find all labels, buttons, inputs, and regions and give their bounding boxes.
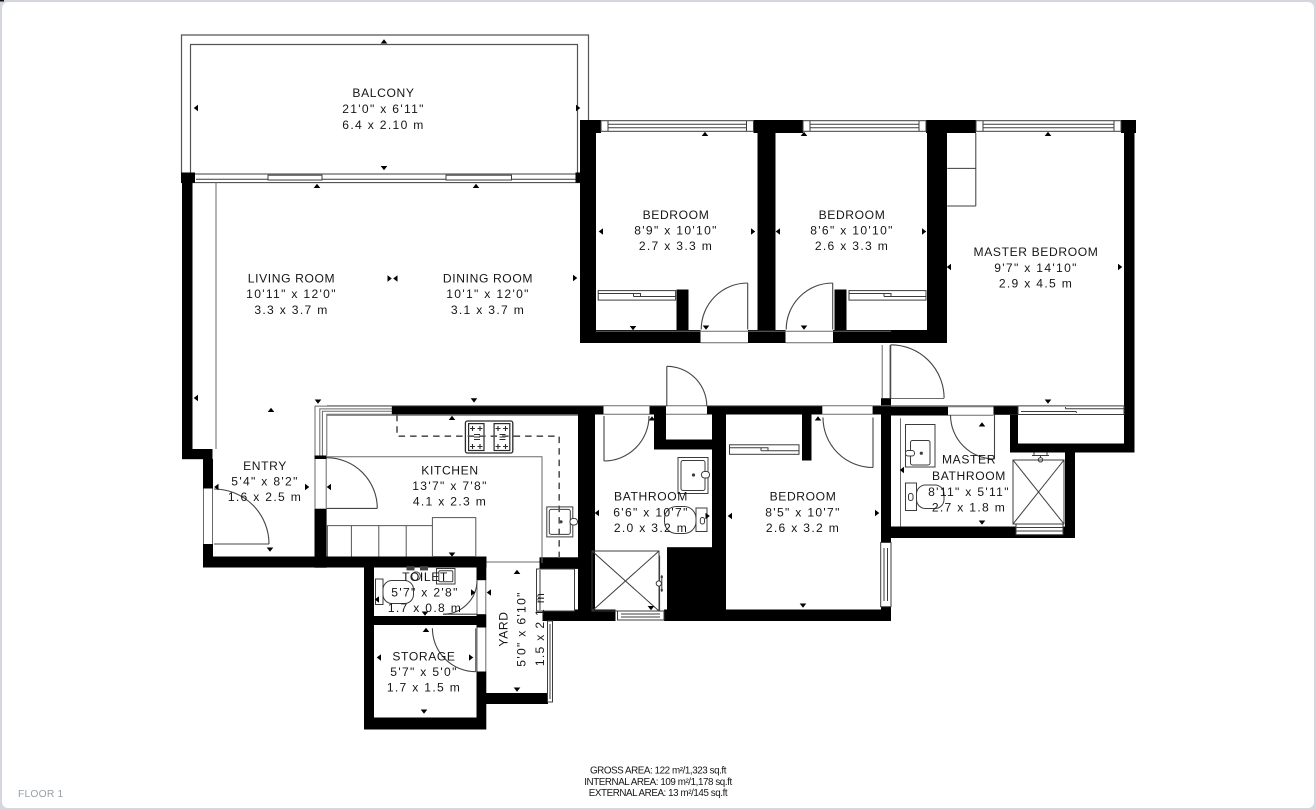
svg-text:6.4 x 2.10 m: 6.4 x 2.10 m	[342, 118, 424, 132]
svg-text:21'0" x 6'11": 21'0" x 6'11"	[342, 102, 425, 116]
svg-text:GROSS AREA: 122 m²/1,323 sq.ft: GROSS AREA: 122 m²/1,323 sq.ft	[590, 766, 727, 777]
svg-text:ENTRY: ENTRY	[243, 459, 287, 473]
svg-text:FLOOR 1: FLOOR 1	[18, 789, 64, 800]
svg-text:8'5" x 10'7": 8'5" x 10'7"	[765, 505, 840, 519]
svg-text:5'7" x 5'0": 5'7" x 5'0"	[390, 665, 457, 679]
svg-text:5'7" x 2'8": 5'7" x 2'8"	[391, 585, 458, 599]
svg-text:INTERNAL AREA: 109 m²/1,178 sq: INTERNAL AREA: 109 m²/1,178 sq.ft	[584, 777, 732, 788]
svg-text:TOILET: TOILET	[402, 570, 448, 584]
svg-text:LIVING ROOM: LIVING ROOM	[248, 271, 335, 285]
svg-text:1.7 x 0.8 m: 1.7 x 0.8 m	[388, 601, 462, 615]
svg-text:3.1 x 3.7 m: 3.1 x 3.7 m	[451, 303, 525, 317]
svg-text:DINING ROOM: DINING ROOM	[443, 271, 533, 285]
svg-text:BEDROOM: BEDROOM	[643, 208, 710, 222]
svg-text:6'6" x 10'7": 6'6" x 10'7"	[613, 505, 688, 519]
svg-text:2.9 x 4.5 m: 2.9 x 4.5 m	[999, 277, 1073, 291]
svg-text:2.7 x 1.8 m: 2.7 x 1.8 m	[932, 500, 1006, 514]
svg-text:2.0 x 3.2 m: 2.0 x 3.2 m	[614, 521, 688, 535]
svg-text:5'4" x 8'2": 5'4" x 8'2"	[231, 475, 298, 489]
svg-text:STORAGE: STORAGE	[392, 649, 455, 663]
svg-text:2.6 x 3.3 m: 2.6 x 3.3 m	[815, 239, 889, 253]
svg-text:YARD: YARD	[496, 611, 510, 646]
svg-text:BALCONY: BALCONY	[352, 86, 414, 100]
svg-text:1.5 x 2.1 m: 1.5 x 2.1 m	[533, 592, 547, 666]
svg-text:BEDROOM: BEDROOM	[770, 490, 837, 504]
svg-text:8'11" x 5'11": 8'11" x 5'11"	[928, 485, 1010, 499]
svg-text:10'1" x 12'0": 10'1" x 12'0"	[446, 287, 530, 301]
svg-text:1.7 x 1.5 m: 1.7 x 1.5 m	[387, 681, 461, 695]
svg-text:4.1 x 2.3 m: 4.1 x 2.3 m	[413, 495, 487, 509]
svg-text:8'6" x 10'10": 8'6" x 10'10"	[810, 224, 894, 238]
svg-text:13'7" x 7'8": 13'7" x 7'8"	[412, 479, 487, 493]
svg-text:10'11" x 12'0": 10'11" x 12'0"	[246, 287, 337, 301]
svg-text:MASTER: MASTER	[942, 453, 996, 467]
svg-text:2.7 x 3.3 m: 2.7 x 3.3 m	[639, 239, 713, 253]
svg-text:5'0" x 6'10": 5'0" x 6'10"	[515, 591, 529, 666]
svg-text:9'7" x 14'10": 9'7" x 14'10"	[994, 261, 1078, 275]
svg-text:BATHROOM: BATHROOM	[932, 469, 1006, 483]
svg-text:2.6 x 3.2 m: 2.6 x 3.2 m	[766, 521, 840, 535]
svg-text:MASTER BEDROOM: MASTER BEDROOM	[974, 245, 1099, 259]
svg-text:KITCHEN: KITCHEN	[421, 463, 478, 477]
svg-text:3.3 x 3.7 m: 3.3 x 3.7 m	[254, 303, 328, 317]
svg-text:BEDROOM: BEDROOM	[819, 208, 886, 222]
svg-text:EXTERNAL AREA: 13 m²/145 sq.ft: EXTERNAL AREA: 13 m²/145 sq.ft	[589, 788, 728, 799]
svg-text:8'9" x 10'10": 8'9" x 10'10"	[634, 224, 718, 238]
svg-text:BATHROOM: BATHROOM	[614, 490, 688, 504]
svg-text:1.6 x 2.5 m: 1.6 x 2.5 m	[228, 490, 302, 504]
